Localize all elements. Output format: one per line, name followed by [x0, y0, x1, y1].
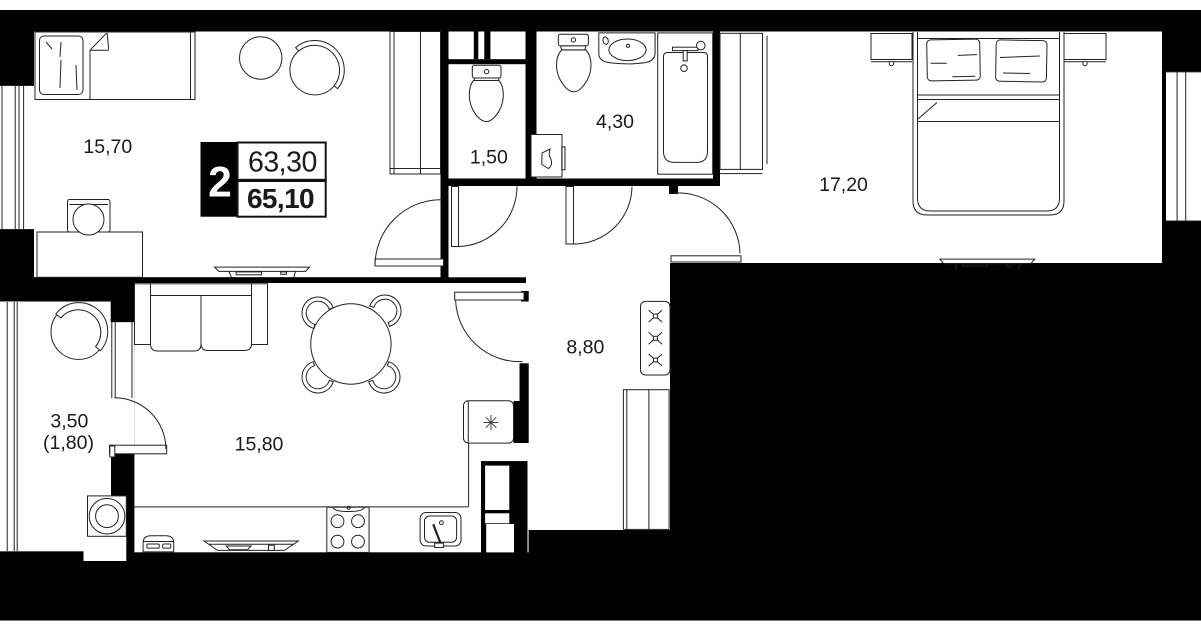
svg-text:2: 2 [208, 159, 232, 206]
svg-text:(1,80): (1,80) [43, 432, 94, 454]
svg-text:4,30: 4,30 [596, 111, 634, 133]
svg-text:15,70: 15,70 [83, 136, 132, 158]
svg-text:8,80: 8,80 [566, 337, 604, 359]
svg-text:65,10: 65,10 [247, 183, 314, 214]
svg-text:17,20: 17,20 [819, 174, 868, 196]
svg-text:1,50: 1,50 [470, 147, 508, 169]
svg-text:63,30: 63,30 [248, 147, 317, 179]
svg-text:3,50: 3,50 [50, 411, 88, 433]
svg-text:15,80: 15,80 [235, 433, 284, 455]
